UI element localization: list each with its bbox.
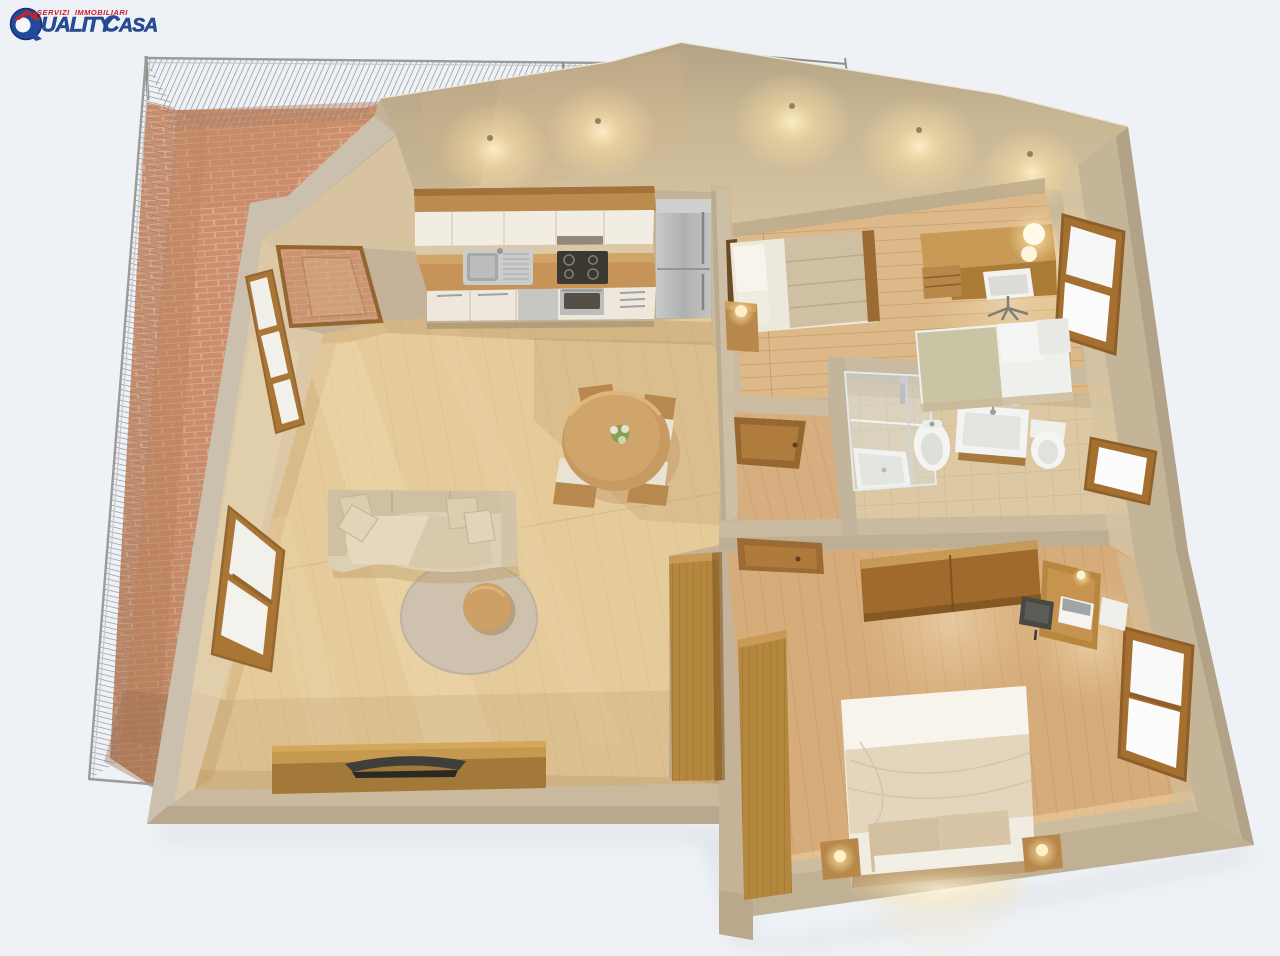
- svg-text:ASA: ASA: [118, 15, 157, 37]
- svg-text:C: C: [103, 11, 120, 37]
